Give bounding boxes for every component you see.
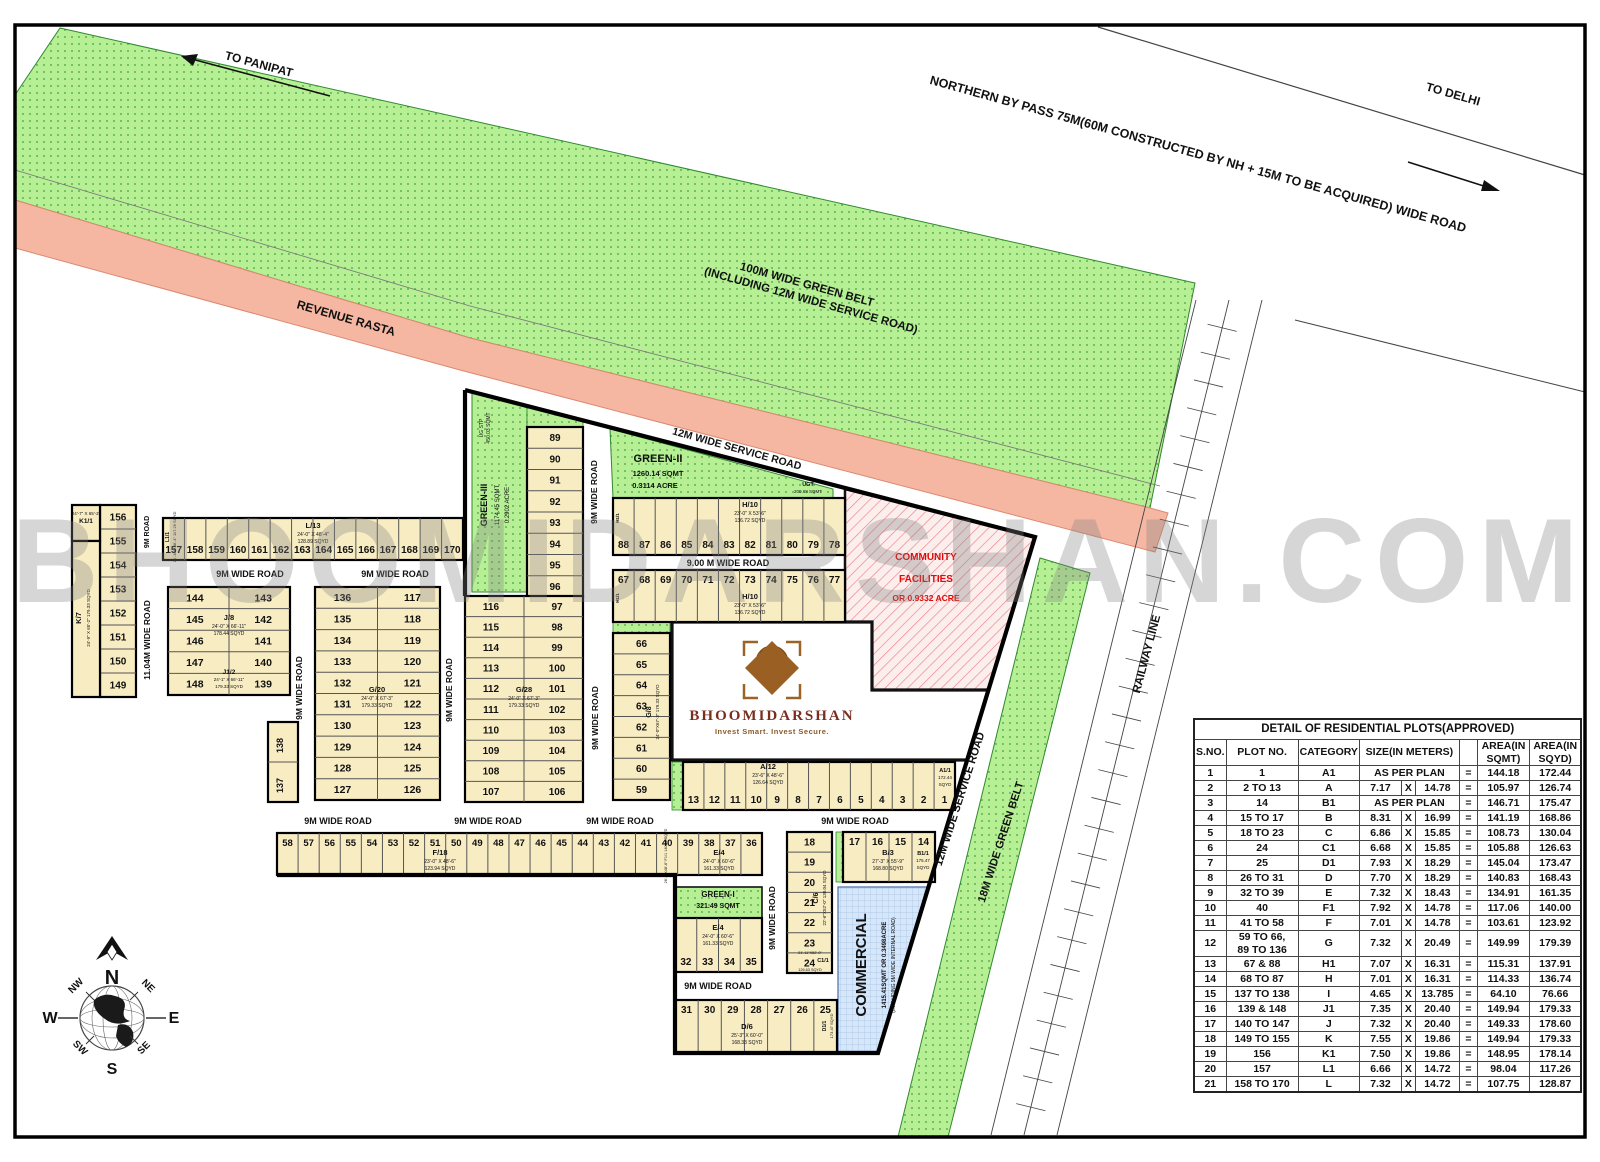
plot-number: 54 — [367, 838, 378, 849]
cell-size: AS PER PLAN — [1359, 796, 1459, 811]
map-label: UGT — [802, 482, 814, 488]
cell-sqyd: 76.66 — [1529, 987, 1581, 1002]
map-label: A/12 — [760, 762, 776, 771]
map-label: C/6 — [813, 892, 820, 903]
cell-size-x: X — [1401, 856, 1415, 871]
plot-number: 73 — [745, 575, 757, 586]
plot-number: 120 — [404, 656, 422, 668]
cell-sqyd: 179.33 — [1529, 1002, 1581, 1017]
plot-number: 126 — [404, 784, 422, 796]
plot-number: 64 — [636, 681, 648, 692]
cell-sqmt: 114.33 — [1477, 972, 1529, 987]
plot-number: 108 — [483, 767, 500, 778]
cell-equals: = — [1459, 931, 1477, 957]
cell-sno: 7 — [1194, 856, 1226, 871]
plot-block-k-col: 156155154153152151150149 — [100, 505, 136, 697]
map-label: COMMUNITY — [895, 552, 957, 563]
cell-category: B — [1298, 811, 1359, 826]
cell-size-x: X — [1401, 841, 1415, 856]
cell-sno: 8 — [1194, 871, 1226, 886]
cell-size-h: 18.29 — [1415, 871, 1459, 886]
cell-size-x: X — [1401, 1077, 1415, 1093]
cell-size-h: 19.86 — [1415, 1032, 1459, 1047]
plot-number: 57 — [303, 838, 314, 849]
map-label: 21'-11"X52'-0" — [798, 951, 822, 955]
cell-sqyd: 179.39 — [1529, 931, 1581, 957]
cell-equals: = — [1459, 957, 1477, 972]
plot-number: 91 — [549, 476, 561, 487]
plot-number: 5 — [858, 795, 864, 806]
cell-equals: = — [1459, 1017, 1477, 1032]
plot-number: 70 — [681, 575, 693, 586]
cell-size-w: 7.50 — [1359, 1047, 1401, 1062]
map-label: B/3 — [882, 848, 894, 857]
plot-number: 99 — [551, 643, 563, 654]
cell-sno: 17 — [1194, 1017, 1226, 1032]
map-label: D/6 — [741, 1022, 753, 1031]
plot-number: 15 — [895, 837, 907, 848]
plot-block-i-block: 138137 — [268, 722, 298, 802]
map-label: G/20 — [369, 685, 385, 694]
map-label: 24'-0" X 48'-4" — [297, 532, 329, 538]
cell-sno: 11 — [1194, 916, 1226, 931]
map-label: 178.44 SQYD — [214, 631, 245, 637]
map-label: 168.33 SQYD — [732, 1040, 763, 1046]
plot-number: 47 — [514, 838, 525, 849]
cell-size-x: X — [1401, 826, 1415, 841]
table-title-row: DETAIL OF RESIDENTIAL PLOTS(APPROVED) — [1194, 719, 1581, 740]
map-label: (INCLUDING 9M WIDE INTERNAL ROAD) — [891, 917, 897, 1013]
cell-size-x: X — [1401, 1047, 1415, 1062]
plot-number: 152 — [110, 609, 127, 620]
plot-number: 87 — [639, 540, 651, 551]
plot-number: 141 — [254, 636, 272, 648]
cell-sqmt: 98.04 — [1477, 1062, 1529, 1077]
cell-plot: 156 — [1226, 1047, 1298, 1062]
cell-sno: 12 — [1194, 931, 1226, 957]
plot-number: 134 — [334, 635, 352, 647]
plot-number: 69 — [660, 575, 672, 586]
cell-sno: 16 — [1194, 1002, 1226, 1017]
plot-number: 36 — [746, 838, 757, 849]
plot-number: 125 — [404, 763, 422, 775]
map-label: 450.03 SQMT — [486, 412, 492, 443]
cell-equals: = — [1459, 886, 1477, 901]
map-label: 9M WIDE ROAD — [294, 656, 304, 720]
residential-plots-table: DETAIL OF RESIDENTIAL PLOTS(APPROVED)S.N… — [1193, 718, 1582, 1093]
plot-number: 130 — [334, 720, 352, 732]
cell-size-h: 14.78 — [1415, 901, 1459, 916]
plot-number: 45 — [556, 838, 567, 849]
map-label: 9M WIDE ROAD — [361, 569, 429, 579]
cell-size-w: 6.66 — [1359, 1062, 1401, 1077]
plot-number: 139 — [254, 679, 272, 691]
cell-size-w: 7.70 — [1359, 871, 1401, 886]
cell-sqyd: 137.91 — [1529, 957, 1581, 972]
cell-plot: 2 TO 13 — [1226, 781, 1298, 796]
cell-size-w: 7.01 — [1359, 916, 1401, 931]
map-label: 24'-0" X 67'-3" — [361, 696, 393, 702]
cell-size-w: 8.31 — [1359, 811, 1401, 826]
plot-number: 113 — [483, 664, 500, 675]
cell-category: J — [1298, 1017, 1359, 1032]
map-label: COMMERCIAL — [853, 913, 870, 1016]
map-label: 9.00 M WIDE ROAD — [687, 558, 770, 568]
plot-number: 80 — [787, 540, 799, 551]
plot-number: 90 — [549, 454, 561, 465]
cell-plot: 140 TO 147 — [1226, 1017, 1298, 1032]
map-label: 11.04M WIDE ROAD — [142, 600, 152, 680]
cell-size-w: 7.32 — [1359, 1077, 1401, 1093]
plot-number: 132 — [334, 677, 352, 689]
cell-sno: 3 — [1194, 796, 1226, 811]
plot-number: 98 — [551, 622, 563, 633]
cell-size-h: 19.86 — [1415, 1047, 1459, 1062]
plot-number: 6 — [837, 795, 843, 806]
cell-size-h: 15.85 — [1415, 826, 1459, 841]
map-label: 9M WIDE ROAD — [216, 569, 284, 579]
map-label: 179.33 SQYD — [215, 684, 244, 689]
plot-number: 163 — [294, 545, 311, 556]
cell-sqmt: 149.94 — [1477, 1032, 1529, 1047]
cell-category: F — [1298, 916, 1359, 931]
plot-number: 12 — [709, 795, 721, 806]
plot-number: 164 — [315, 545, 332, 556]
plot-number: 121 — [404, 677, 422, 689]
cell-size-w: 7.17 — [1359, 781, 1401, 796]
cell-sno: 21 — [1194, 1077, 1226, 1093]
plot-number: 169 — [423, 545, 440, 556]
map-label: 168.80 SQYD — [873, 866, 904, 872]
plot-number: 13 — [688, 795, 700, 806]
green-sliver-g8 — [613, 622, 670, 633]
plot-number: 62 — [636, 722, 648, 733]
cell-plot: 1 — [1226, 766, 1298, 781]
plot-number: 167 — [380, 545, 397, 556]
cell-size-h: 16.31 — [1415, 957, 1459, 972]
plot-number: 122 — [404, 699, 422, 711]
table-title: DETAIL OF RESIDENTIAL PLOTS(APPROVED) — [1194, 719, 1581, 740]
cell-plot: 26 TO 31 — [1226, 871, 1298, 886]
header-size: SIZE(IN METERS) — [1359, 740, 1459, 766]
plot-number: 124 — [404, 741, 422, 753]
plot-block-h-row-2: 6768697071727374757677 — [613, 570, 845, 622]
cell-sno: 14 — [1194, 972, 1226, 987]
plot-number: 107 — [483, 787, 500, 798]
cell-size-x: X — [1401, 1017, 1415, 1032]
map-label: 179.33 SQYD — [362, 703, 393, 709]
cell-equals: = — [1459, 972, 1477, 987]
cell-size-x: X — [1401, 1002, 1415, 1017]
plot-number: 96 — [549, 582, 561, 593]
plot-number: 61 — [636, 743, 648, 754]
cell-sqyd: 175.47 — [1529, 796, 1581, 811]
cell-size-h: 18.29 — [1415, 856, 1459, 871]
header-plot: PLOT NO. — [1226, 740, 1298, 766]
plot-number: 160 — [230, 545, 247, 556]
plot-number: 37 — [725, 838, 736, 849]
plot-number: 117 — [404, 592, 421, 604]
plot-number: 128 — [334, 763, 352, 775]
map-label: OR 0.9332 ACRE — [892, 593, 960, 603]
cell-sqmt: 117.06 — [1477, 901, 1529, 916]
plot-number: 2 — [921, 795, 927, 806]
table-row: 826 TO 31D7.70X18.29=140.83168.43 — [1194, 871, 1581, 886]
cell-size-w: 7.32 — [1359, 1017, 1401, 1032]
table-row: 20157L16.66X14.72=98.04117.26 — [1194, 1062, 1581, 1077]
cell-sqmt: 141.19 — [1477, 811, 1529, 826]
plot-number: 123 — [404, 720, 422, 732]
plot-number: 32 — [680, 957, 692, 968]
map-label: 161.33 SQYD — [703, 941, 734, 947]
plot-number: 39 — [683, 838, 694, 849]
cell-size-w: 7.32 — [1359, 931, 1401, 957]
plot-number: 149 — [110, 681, 127, 692]
cell-plot: 41 TO 58 — [1226, 916, 1298, 931]
plot-number: 129 — [334, 741, 352, 753]
map-label: 24'-0" X 66'-11" — [212, 624, 246, 630]
plot-number: 35 — [746, 957, 758, 968]
map-label: 24'-0"X67'-3" 179.33 SQYD — [655, 684, 660, 740]
plot-number: 85 — [681, 540, 693, 551]
cell-size-h: 13.785 — [1415, 987, 1459, 1002]
plot-number: 20 — [804, 878, 816, 889]
cell-category: H1 — [1298, 957, 1359, 972]
cell-size-x: X — [1401, 1062, 1415, 1077]
logo-tagline: Invest Smart. Invest Secure. — [715, 727, 829, 736]
cell-equals: = — [1459, 781, 1477, 796]
map-label: 0.2902 ACRE — [505, 487, 511, 523]
map-label: 9M ROAD — [144, 516, 151, 548]
cell-size-w: 6.86 — [1359, 826, 1401, 841]
plot-number: 95 — [549, 561, 561, 572]
cell-plot: 59 TO 66,89 TO 136 — [1226, 931, 1298, 957]
cell-equals: = — [1459, 796, 1477, 811]
plot-number: 115 — [483, 622, 500, 633]
cell-equals: = — [1459, 1077, 1477, 1093]
cell-sqyd: 123.92 — [1529, 916, 1581, 931]
map-label: H/10 — [742, 592, 758, 601]
cell-category: L — [1298, 1077, 1359, 1093]
cell-plot: 137 TO 138 — [1226, 987, 1298, 1002]
map-label: 173.47 SQYD — [829, 1014, 834, 1039]
cell-equals: = — [1459, 811, 1477, 826]
map-label: 24'-0" X 60'-6" — [703, 859, 735, 865]
cell-size-w: 7.32 — [1359, 886, 1401, 901]
cell-equals: = — [1459, 916, 1477, 931]
plot-number: 8 — [795, 795, 801, 806]
map-label: H/10 — [742, 500, 758, 509]
map-label: 26'-0"X48'-6" F1/1 140.11 SQYD — [664, 828, 668, 883]
cell-size-x: X — [1401, 781, 1415, 796]
cell-category: A — [1298, 781, 1359, 796]
map-label: GREEN-I — [701, 890, 734, 899]
plot-number: 166 — [358, 545, 375, 556]
table-row: 21158 TO 170L7.32X14.72=107.75128.87 — [1194, 1077, 1581, 1093]
table-row: 1141 TO 58F7.01X14.78=103.61123.92 — [1194, 916, 1581, 931]
cell-sqyd: 140.00 — [1529, 901, 1581, 916]
plot-number: 76 — [808, 575, 820, 586]
header-category: CATEGORY — [1298, 740, 1359, 766]
cell-sqmt: 107.75 — [1477, 1077, 1529, 1093]
cell-sno: 20 — [1194, 1062, 1226, 1077]
cell-size-x: X — [1401, 1032, 1415, 1047]
cell-plot: 24 — [1226, 841, 1298, 856]
plot-number: 135 — [334, 613, 352, 625]
map-label: 179.33 SQYD — [509, 703, 540, 709]
cell-sqyd: 136.74 — [1529, 972, 1581, 987]
cell-plot: 149 TO 155 — [1226, 1032, 1298, 1047]
plot-number: 97 — [551, 602, 563, 613]
map-label: 9M WIDE ROAD — [586, 816, 654, 826]
cell-sno: 1 — [1194, 766, 1226, 781]
plot-number: 43 — [599, 838, 610, 849]
map-label: J/8 — [224, 613, 234, 622]
plot-number: 71 — [702, 575, 714, 586]
map-label: 24'-7" X 65'-2" — [72, 511, 101, 516]
plot-number: 165 — [337, 545, 354, 556]
cell-sqyd: 179.33 — [1529, 1032, 1581, 1047]
plot-number: 81 — [766, 540, 778, 551]
table-row: 1040F17.92X14.78=117.06140.00 — [1194, 901, 1581, 916]
plot-number: 145 — [186, 614, 204, 626]
plot-block-g8-col: 6665646362616059 — [613, 633, 670, 800]
cell-sno: 15 — [1194, 987, 1226, 1002]
cell-size-h: 14.72 — [1415, 1062, 1459, 1077]
map-label: 1415.41SQMT OR 0.3498ACRE — [882, 922, 888, 1009]
cell-sqmt: 144.18 — [1477, 766, 1529, 781]
plot-number: 161 — [251, 545, 268, 556]
cell-plot: 157 — [1226, 1062, 1298, 1077]
cell-category: K — [1298, 1032, 1359, 1047]
map-label: D1/1 — [822, 1021, 828, 1032]
plot-number: 142 — [254, 614, 272, 626]
plot-number: 42 — [620, 838, 631, 849]
cell-size-h: 16.99 — [1415, 811, 1459, 826]
header-area-sqmt: AREA(IN SQMT) — [1477, 740, 1529, 766]
map-label: FACILITIES — [899, 574, 953, 585]
plot-number: 66 — [636, 639, 648, 650]
plot-number: 153 — [110, 585, 127, 596]
cell-equals: = — [1459, 987, 1477, 1002]
cell-size: AS PER PLAN — [1359, 766, 1459, 781]
map-label: 22'-6"X52'-0" 130.04 SQYD — [822, 870, 827, 926]
map-label: 123.94 SQYD — [425, 866, 456, 872]
plot-number: 17 — [849, 837, 861, 848]
plot-number: 28 — [750, 1005, 762, 1016]
map-label: J1/2 — [223, 669, 236, 676]
plot-block-a12-row: 13121110987654321 — [683, 762, 955, 810]
plot-block-f-row: 5857565554535251504948474645444342414039… — [277, 833, 762, 875]
map-label: A1/1 — [939, 768, 951, 774]
plot-number: 170 — [444, 545, 461, 556]
cell-size-x: X — [1401, 901, 1415, 916]
plot-number: 22 — [804, 918, 816, 929]
cell-equals: = — [1459, 766, 1477, 781]
plot-number: 19 — [804, 858, 816, 869]
plot-number: 23 — [804, 938, 816, 949]
cell-sqmt: 140.83 — [1477, 871, 1529, 886]
map-label: 9M WIDE ROAD — [821, 816, 889, 826]
cell-sno: 18 — [1194, 1032, 1226, 1047]
plot-number: 4 — [879, 795, 885, 806]
cell-category: C1 — [1298, 841, 1359, 856]
cell-plot: 158 TO 170 — [1226, 1077, 1298, 1093]
map-label: 24'-0" X 60'-6" — [702, 934, 734, 940]
cell-equals: = — [1459, 1047, 1477, 1062]
table-row: 725D17.93X18.29=145.04173.47 — [1194, 856, 1581, 871]
plot-number: 89 — [549, 433, 561, 444]
map-label: 200.68 SQMT — [794, 489, 822, 494]
cell-size-h: 20.49 — [1415, 931, 1459, 957]
plot-number: 82 — [745, 540, 757, 551]
map-label: 9M WIDE ROAD — [304, 816, 372, 826]
plot-number: 18 — [804, 838, 816, 849]
cell-size-x: X — [1401, 916, 1415, 931]
plot-number: 44 — [577, 838, 588, 849]
map-label: H1/1 — [615, 593, 620, 603]
cell-sqyd: 161.35 — [1529, 886, 1581, 901]
plot-number: 131 — [334, 699, 352, 711]
cell-sqmt: 149.99 — [1477, 931, 1529, 957]
cell-size-x: X — [1401, 972, 1415, 987]
cell-equals: = — [1459, 871, 1477, 886]
plot-number: 83 — [723, 540, 735, 551]
plot-number: 138 — [275, 738, 285, 753]
map-label: 21'-10"X48'-4" 117.26 SQYD — [172, 512, 177, 563]
table-row: 18149 TO 155K7.55X19.86=149.94179.33 — [1194, 1032, 1581, 1047]
table-row: 314B1AS PER PLAN=146.71175.47 — [1194, 796, 1581, 811]
map-label: 172.44 — [938, 775, 952, 780]
map-label: GREEN-II — [634, 453, 683, 465]
cell-sqmt: 148.95 — [1477, 1047, 1529, 1062]
cell-sqmt: 64.10 — [1477, 987, 1529, 1002]
plot-number: 67 — [618, 575, 630, 586]
plot-number: 16 — [872, 837, 884, 848]
cell-sqmt: 105.97 — [1477, 781, 1529, 796]
cell-sno: 10 — [1194, 901, 1226, 916]
cell-size-h: 16.31 — [1415, 972, 1459, 987]
cell-plot: 25 — [1226, 856, 1298, 871]
cell-size-w: 7.55 — [1359, 1032, 1401, 1047]
plot-number: 86 — [660, 540, 672, 551]
map-label: GREEN-III — [479, 484, 489, 527]
cell-size-x: X — [1401, 931, 1415, 957]
map-label: L/13 — [305, 521, 320, 530]
cell-equals: = — [1459, 1032, 1477, 1047]
plot-number: 33 — [702, 957, 714, 968]
header-sno: S.NO. — [1194, 740, 1226, 766]
plot-number: 52 — [409, 838, 420, 849]
cell-sqmt: 134.91 — [1477, 886, 1529, 901]
cell-sno: 4 — [1194, 811, 1226, 826]
map-label: G/28 — [516, 685, 532, 694]
plot-block-b-row: 17161514 — [843, 832, 935, 882]
cell-size-h: 20.40 — [1415, 1002, 1459, 1017]
cell-size-x: X — [1401, 987, 1415, 1002]
map-label: B1/1 — [917, 851, 929, 857]
cell-size-x: X — [1401, 871, 1415, 886]
plot-number: 74 — [766, 575, 778, 586]
plot-number: 56 — [324, 838, 335, 849]
plot-number: 68 — [639, 575, 651, 586]
table-row: 1367 & 88H17.07X16.31=115.31137.91 — [1194, 957, 1581, 972]
cell-sqyd: 168.86 — [1529, 811, 1581, 826]
cell-sno: 9 — [1194, 886, 1226, 901]
map-label: 1260.14 SQMT — [633, 469, 684, 478]
plot-number: 147 — [186, 657, 204, 669]
map-label: 321.49 SQMT — [696, 903, 740, 910]
